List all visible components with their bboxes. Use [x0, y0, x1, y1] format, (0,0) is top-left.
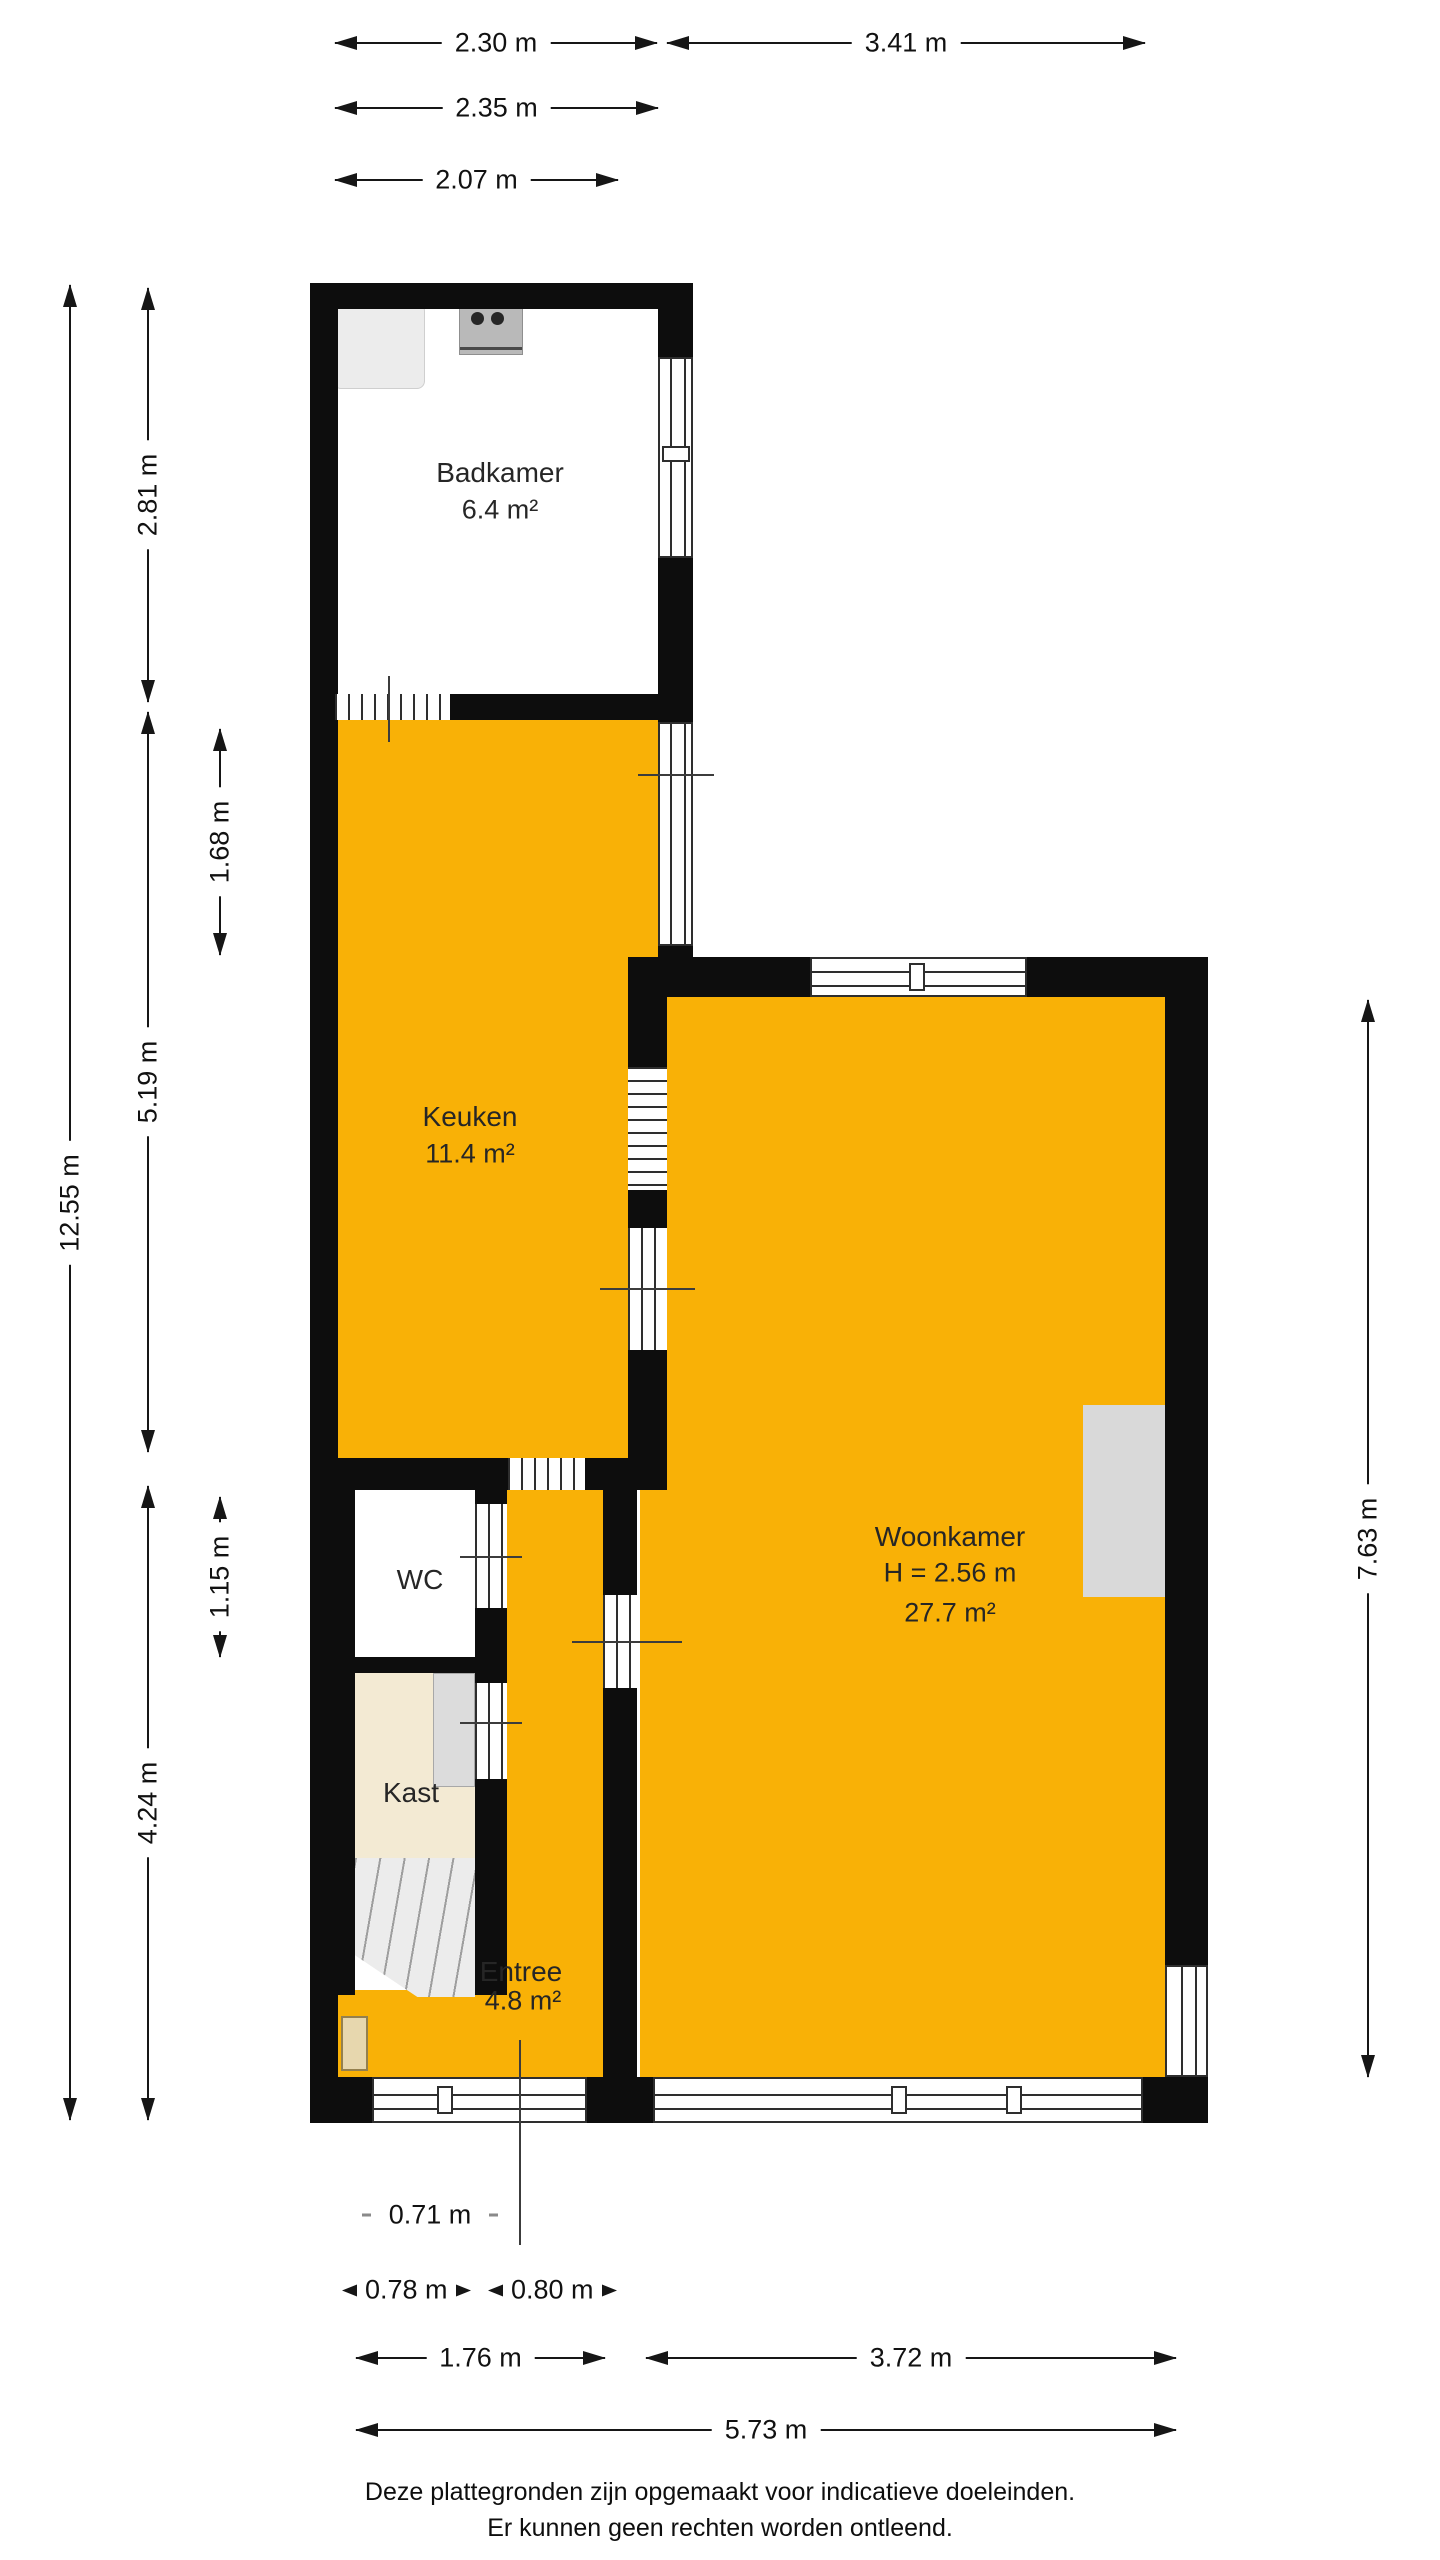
window-divider [662, 446, 690, 462]
arrow-up-icon [141, 1485, 155, 1508]
wall-top [310, 283, 693, 309]
tick-kast-door [460, 1722, 522, 1724]
woonkamer-height: H = 2.56 m [884, 1558, 1017, 1589]
shower-tray-icon [333, 303, 425, 389]
arrow-left-icon [666, 36, 689, 50]
dim-left-1255: 12.55 m [69, 285, 71, 2120]
dim-left-168: 1.68 m [219, 729, 221, 955]
arrow-right-icon [635, 36, 658, 50]
arrow-down-icon [141, 2098, 155, 2121]
entree-bottom-window [372, 2077, 587, 2123]
arrow-up-icon [141, 287, 155, 310]
wall-left [310, 283, 338, 2123]
stove-icon [459, 302, 523, 355]
floorplan-page: { "title_note": "floor plan", "colors": … [0, 0, 1440, 2560]
arrow-left-icon [342, 2284, 357, 2296]
arrow-left-icon [334, 173, 357, 187]
entree-area: 4.8 m² [485, 1986, 562, 2017]
keuken-woonkamer-window-opening [628, 1067, 667, 1190]
badkamer-keuken-window-opening [335, 694, 450, 720]
woonkamer-bottom-window [653, 2077, 1143, 2123]
arrow-up-icon [1361, 999, 1375, 1022]
dim-bottom-078: 0.78 m [342, 2275, 467, 2306]
badkamer-label: Badkamer [436, 457, 564, 489]
dim-right-763: 7.63 m [1367, 1000, 1369, 2077]
wall-corner-bottom-left [310, 2077, 372, 2123]
wall-keuken-woonkamer-a [628, 997, 667, 1067]
closet-icon [433, 1673, 475, 1787]
arrow-right-icon [596, 173, 619, 187]
tick-dash-icon [489, 2214, 498, 2217]
dim-top-235: 2.35 m [335, 107, 658, 109]
arrow-down-icon [213, 933, 227, 956]
arrow-up-icon [63, 284, 77, 307]
wall-wc-right-a [475, 1490, 507, 1504]
arrow-right-icon [1154, 2423, 1177, 2437]
front-door-icon [341, 2016, 368, 2071]
woonkamer-label: Woonkamer [875, 1521, 1025, 1553]
wall-woonkamer-top-a [628, 957, 810, 997]
disclaimer-line-1: Deze plattegronden zijn opgemaakt voor i… [120, 2474, 1320, 2510]
woonkamer-right-window [1165, 1965, 1208, 2077]
window-divider [1006, 2086, 1022, 2114]
wall-keuken-woonkamer-c [628, 1350, 667, 1470]
tick-entree-woonkamer-door [572, 1641, 682, 1643]
tick-keuken-window [638, 774, 714, 776]
arrow-left-icon [355, 2351, 378, 2365]
wall-unit-icon [1083, 1405, 1165, 1597]
dim-top-341: 3.41 m [667, 42, 1145, 44]
arrow-left-icon [334, 36, 357, 50]
woonkamer-top-window [810, 957, 1027, 997]
tick-dash-icon [362, 2214, 371, 2217]
dim-bottom-372: 3.72 m [646, 2357, 1176, 2359]
dim-left-115: 1.15 m [219, 1497, 221, 1657]
kast-label: Kast [383, 1777, 439, 1809]
window-divider [891, 2086, 907, 2114]
badkamer-area: 6.4 m² [462, 495, 539, 526]
arrow-right-icon [1154, 2351, 1177, 2365]
window-divider [909, 963, 925, 991]
stairs-icon [355, 1858, 475, 1997]
wall-badkamer-right-a [658, 283, 693, 357]
arrow-right-icon [602, 2284, 617, 2296]
leader-entree-width [519, 2040, 521, 2245]
wall-left-lining [338, 1458, 355, 1995]
wall-pier-bottom-middle [587, 2077, 653, 2123]
keuken-floor-lower [336, 958, 628, 1468]
dim-top-230: 2.30 m [335, 42, 657, 44]
arrow-left-icon [488, 2284, 503, 2296]
arrow-right-icon [456, 2284, 471, 2296]
arrow-down-icon [63, 2098, 77, 2121]
dim-left-281: 2.81 m [147, 288, 149, 702]
arrow-left-icon [334, 101, 357, 115]
wall-wc-bottom [338, 1657, 507, 1673]
kast-door-opening [475, 1683, 507, 1779]
dim-left-424: 4.24 m [147, 1486, 149, 2120]
disclaimer: Deze plattegronden zijn opgemaakt voor i… [120, 2474, 1320, 2546]
dim-bottom-573: 5.73 m [356, 2429, 1176, 2431]
entree-label: Entree [480, 1956, 563, 1988]
disclaimer-line-2: Er kunnen geen rechten worden ontleend. [120, 2510, 1320, 2546]
dim-bottom-176: 1.76 m [356, 2357, 605, 2359]
keuken-area: 11.4 m² [425, 1139, 515, 1170]
wall-kast-right-a [475, 1673, 507, 1683]
dim-bottom-071: 0.71 m [362, 2200, 498, 2231]
arrow-down-icon [141, 1430, 155, 1453]
wall-corner-bottom-right [1143, 2077, 1208, 2123]
arrow-right-icon [636, 101, 659, 115]
wall-keuken-woonkamer-b [628, 1190, 667, 1228]
keuken-label: Keuken [423, 1101, 518, 1133]
arrow-up-icon [213, 728, 227, 751]
tick-wc-door [460, 1556, 522, 1558]
arrow-right-icon [583, 2351, 606, 2365]
tick-keuken-woonkamer-door [600, 1288, 695, 1290]
badkamer-window [658, 357, 693, 558]
arrow-up-icon [213, 1496, 227, 1519]
arrow-left-icon [645, 2351, 668, 2365]
arrow-right-icon [1123, 36, 1146, 50]
arrow-left-icon [355, 2423, 378, 2437]
keuken-window [658, 722, 693, 946]
dim-left-519: 5.19 m [147, 712, 149, 1452]
arrow-down-icon [1361, 2055, 1375, 2078]
arrow-down-icon [213, 1635, 227, 1658]
window-divider [437, 2086, 453, 2114]
wall-entree-woonkamer-b [603, 1688, 637, 2077]
wall-entree-woonkamer-a [603, 1470, 637, 1595]
dim-bottom-080: 0.80 m [488, 2275, 608, 2306]
arrow-up-icon [141, 711, 155, 734]
woonkamer-area: 27.7 m² [904, 1598, 996, 1629]
keuken-entree-door-opening [508, 1458, 585, 1490]
wall-woonkamer-right [1165, 957, 1208, 1965]
wc-label: WC [397, 1564, 444, 1596]
entree-floor-bottom [338, 1990, 618, 2077]
tick-badkamer-keuken-window [388, 676, 390, 742]
dim-top-207: 2.07 m [335, 179, 618, 181]
arrow-down-icon [141, 680, 155, 703]
keuken-floor-upper [336, 718, 658, 960]
